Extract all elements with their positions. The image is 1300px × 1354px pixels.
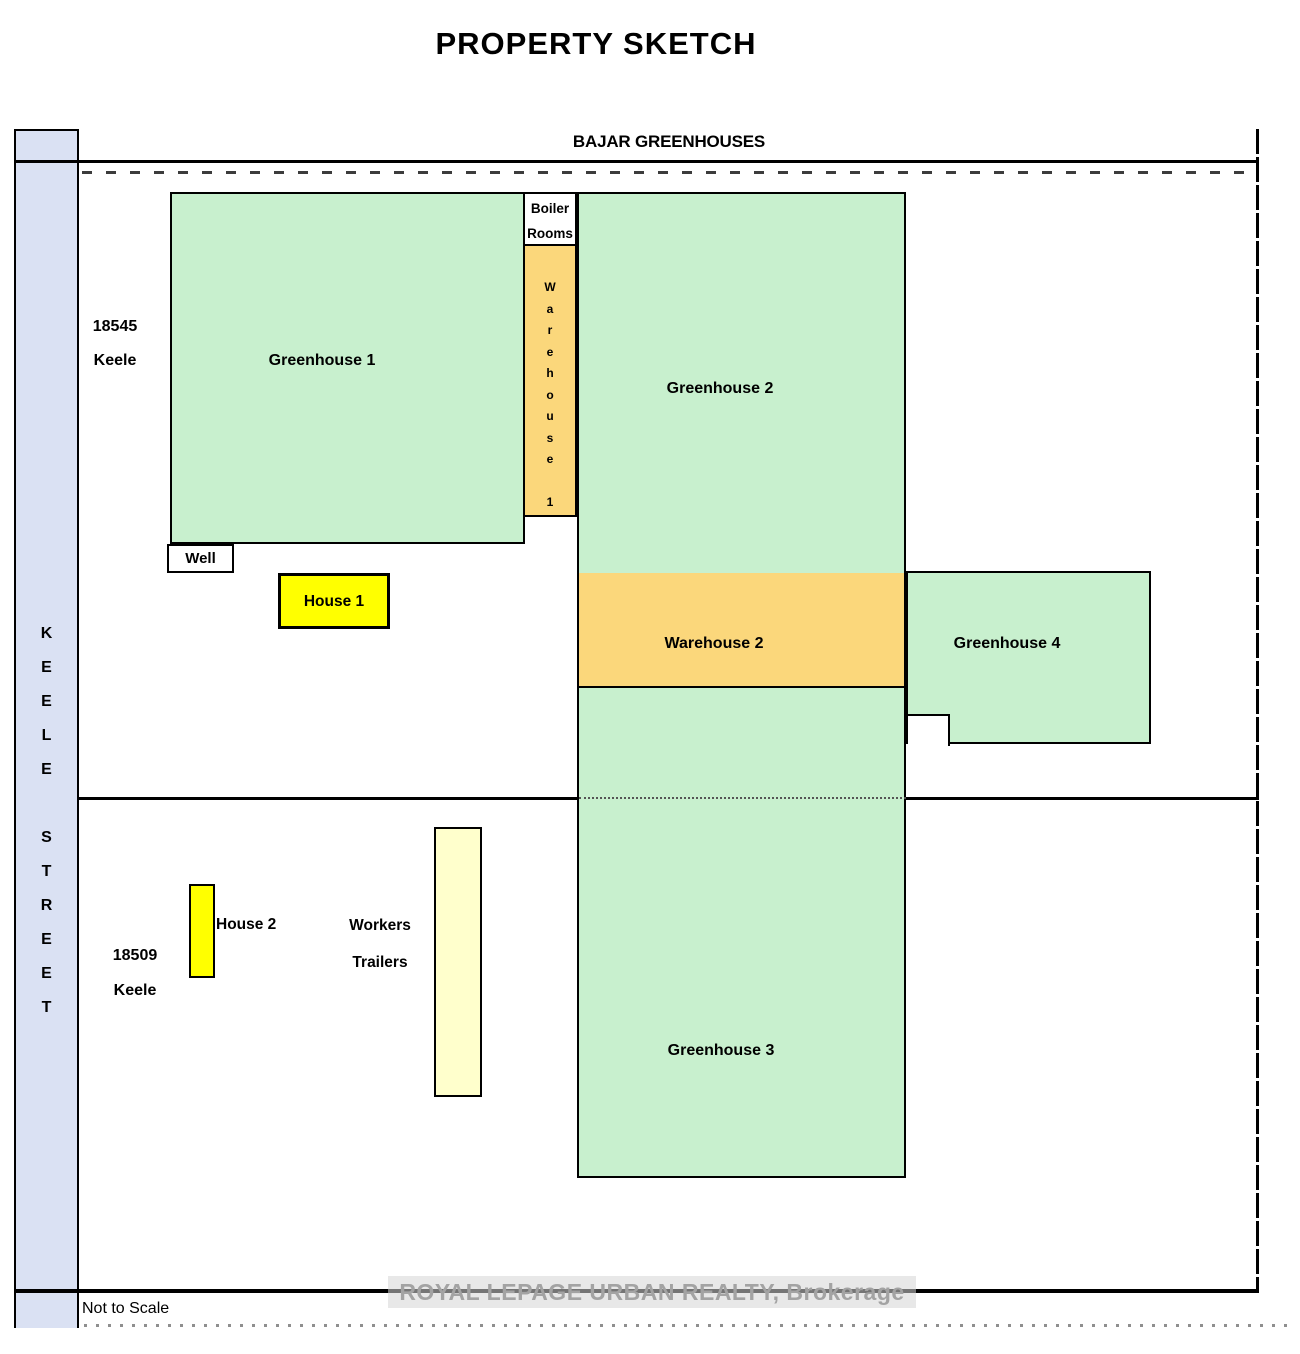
top-boundary-dashes: [82, 171, 1257, 174]
greenhouse-connector: [577, 688, 906, 798]
address-18509-keele: 18509 Keele: [104, 938, 166, 1008]
right-boundary-line: [1256, 129, 1259, 1292]
brokerage-watermark: ROYAL LEPAGE URBAN REALTY, Brokerage: [388, 1276, 916, 1308]
top-boundary-line: [14, 160, 1259, 163]
property-sketch-page: PROPERTY SKETCH K E E L E S T R E E T BA…: [0, 0, 1300, 1354]
greenhouse-4: [906, 571, 1151, 744]
lot-division-line-dotted: [579, 797, 906, 799]
workers-trailers-label: Workers Trailers: [326, 907, 434, 981]
warehouse-2: [577, 573, 906, 688]
house-2: [189, 884, 215, 978]
not-to-scale-label: Not to Scale: [82, 1300, 169, 1318]
greenhouse-3-label: Greenhouse 3: [621, 1041, 821, 1060]
greenhouse-1-label: Greenhouse 1: [222, 351, 422, 370]
house-1-label: House 1: [278, 592, 390, 611]
site-name-label: BAJAR GREENHOUSES: [79, 132, 1259, 152]
well-label: Well: [167, 549, 234, 568]
greenhouse-2-label: Greenhouse 2: [620, 379, 820, 398]
greenhouse-3: [577, 798, 906, 1178]
keele-street-label: K E E L E S T R E E T: [16, 617, 77, 1025]
workers-trailers: [434, 827, 482, 1097]
bottom-perforation-dashes: [84, 1324, 1289, 1327]
keele-street-band: K E E L E S T R E E T: [14, 129, 79, 1328]
address-18545-keele: 18545 Keele: [84, 310, 146, 378]
greenhouse-4-notch: [908, 714, 950, 746]
lot-division-line-east: [904, 797, 1259, 800]
greenhouse-4-label: Greenhouse 4: [907, 634, 1107, 653]
house-2-label: House 2: [216, 915, 336, 934]
lot-division-line-west: [79, 797, 579, 800]
boiler-rooms-label: Boiler Rooms: [523, 196, 577, 246]
page-title: PROPERTY SKETCH: [0, 26, 1192, 62]
warehouse-1-label: W a r e h o u s e 1: [523, 277, 577, 514]
warehouse-2-label: Warehouse 2: [614, 634, 814, 653]
